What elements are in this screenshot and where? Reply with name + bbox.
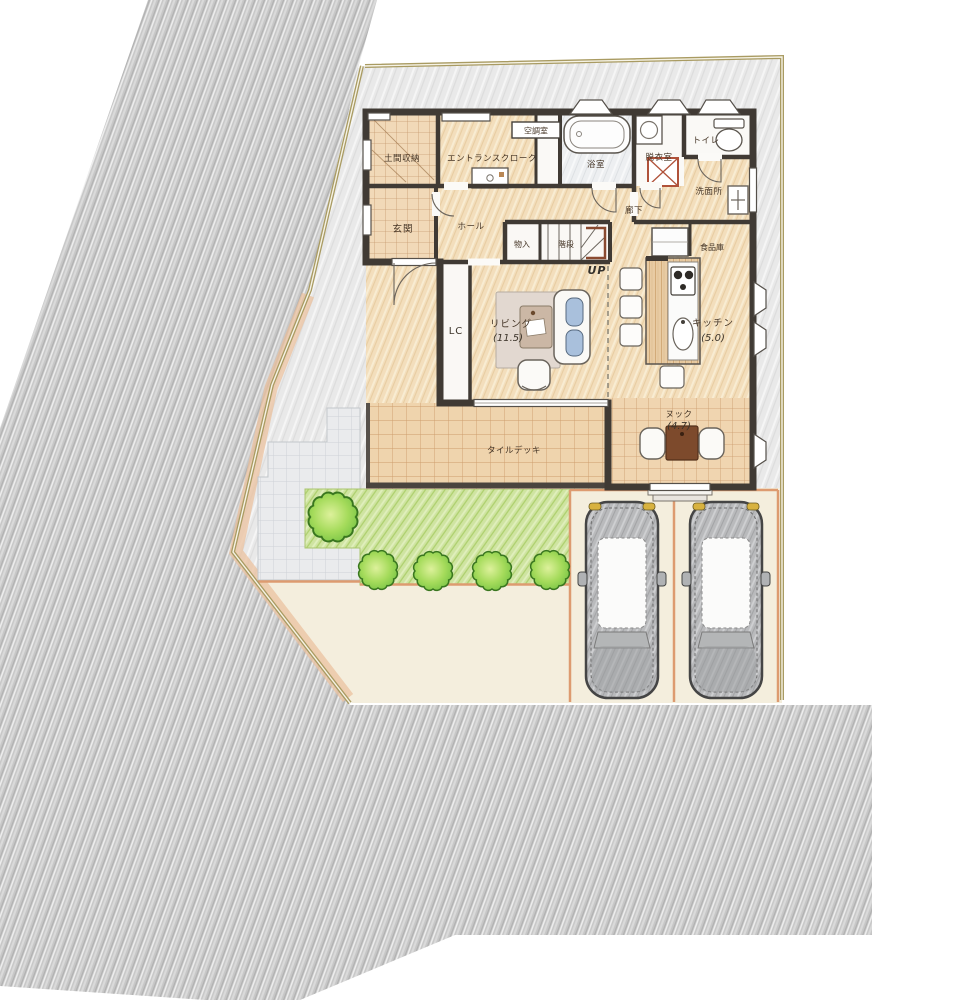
shrub-4 xyxy=(531,551,570,590)
stove xyxy=(671,267,695,295)
shrub-large xyxy=(309,493,358,542)
label-doma: 土間収納 xyxy=(384,153,420,164)
nook-chair-right xyxy=(699,428,724,459)
label-kitchen: キッチン xyxy=(692,318,734,329)
label-ac-room: 空調室 xyxy=(524,126,548,136)
label-stairs: 階段 xyxy=(558,239,574,249)
label-nook-size: (4.7) xyxy=(667,421,691,432)
label-hall: ホール xyxy=(457,222,484,232)
stool-3 xyxy=(620,324,642,346)
label-closet: 物入 xyxy=(514,239,530,249)
shrub-2 xyxy=(414,552,453,591)
label-bathroom: 浴室 xyxy=(587,159,605,170)
living-chair xyxy=(518,360,550,390)
shrub-3 xyxy=(473,552,512,591)
label-dressing-room: 脱衣室 xyxy=(645,152,672,163)
label-toilet: トイレ xyxy=(692,136,719,146)
label-pantry: 食品庫 xyxy=(700,242,724,252)
label-entrance-cloak: エントランスクローク xyxy=(447,154,537,164)
label-genkan: 玄関 xyxy=(392,223,413,235)
car-1 xyxy=(578,502,666,698)
bathtub xyxy=(564,116,630,153)
toilet-bowl xyxy=(716,129,742,151)
toilet-tank xyxy=(714,119,744,128)
nook-chair-left xyxy=(640,428,665,459)
label-living-closet: LC xyxy=(449,326,464,337)
stool-2 xyxy=(620,296,642,318)
floor-plan-canvas: 土間収納 エントランスクローク 空調室 浴室 脱衣室 トイレ 洗面所 廊下 玄関… xyxy=(0,0,956,1000)
label-tile-deck: タイルデッキ xyxy=(487,445,541,456)
stool-4 xyxy=(660,366,684,388)
label-washroom: 洗面所 xyxy=(695,186,722,197)
label-nook: ヌック xyxy=(665,410,692,420)
label-living-size: (11.5) xyxy=(493,333,523,344)
label-corridor: 廊下 xyxy=(625,205,643,216)
label-up: UP xyxy=(588,264,607,277)
label-living: リビング xyxy=(490,318,532,330)
shrub-1 xyxy=(359,551,398,590)
stool-1 xyxy=(620,268,642,290)
label-kitchen-size: (5.0) xyxy=(701,333,725,344)
car-2 xyxy=(682,502,770,698)
